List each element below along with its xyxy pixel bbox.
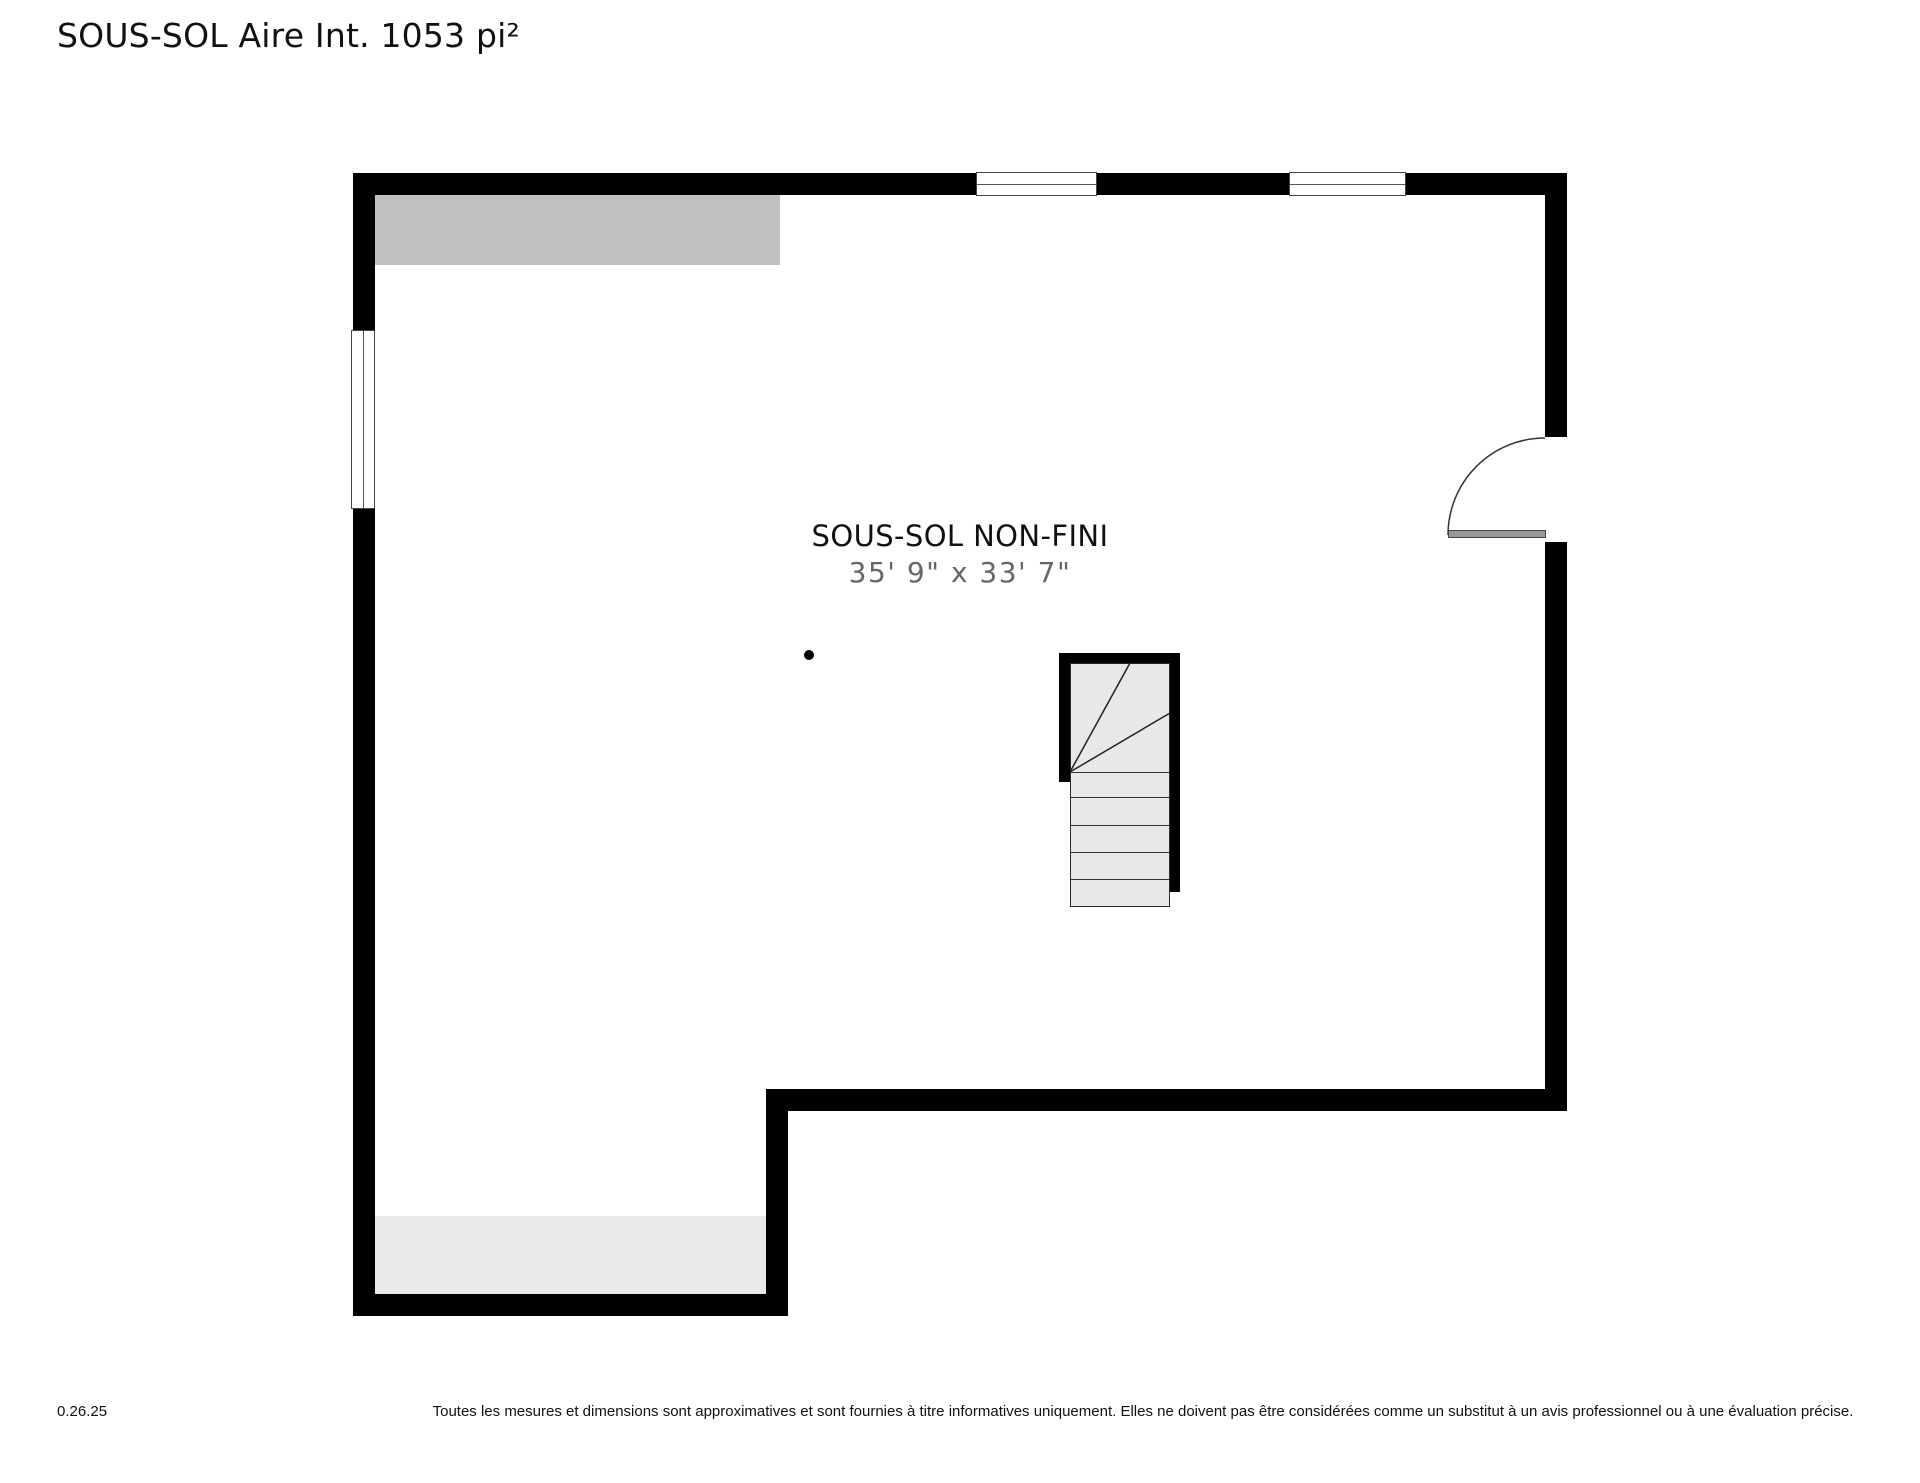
window-icon bbox=[1289, 172, 1406, 196]
wall-step-side bbox=[766, 1089, 788, 1316]
footer-disclaimer: Toutes les mesures et dimensions sont ap… bbox=[433, 1403, 1854, 1420]
unexcavated-area bbox=[375, 195, 780, 265]
window-pane-line bbox=[1290, 184, 1405, 185]
wall-right-upper bbox=[1545, 173, 1567, 437]
stair-wall-right bbox=[1170, 653, 1180, 892]
window-pane-line bbox=[977, 184, 1096, 185]
room-label: SOUS-SOL NON-FINI 35' 9" x 33' 7" bbox=[353, 519, 1567, 589]
page-title: SOUS-SOL Aire Int. 1053 pi² bbox=[57, 16, 520, 55]
stair-winder-lines bbox=[1059, 653, 1180, 907]
room-dimensions: 35' 9" x 33' 7" bbox=[353, 556, 1567, 589]
footer-version: 0.26.25 bbox=[57, 1403, 107, 1420]
wall-bottom-left bbox=[353, 1294, 788, 1316]
column-dot-icon bbox=[804, 650, 814, 660]
floorplan-page: SOUS-SOL Aire Int. 1053 pi² bbox=[0, 0, 1920, 1483]
window-pane-line bbox=[363, 331, 364, 508]
wall-step-bottom bbox=[766, 1089, 1567, 1111]
window-icon bbox=[351, 330, 375, 509]
room-name: SOUS-SOL NON-FINI bbox=[353, 519, 1567, 553]
stair-wall-top bbox=[1059, 653, 1180, 663]
lower-gray-area bbox=[375, 1216, 766, 1294]
staircase-icon bbox=[1059, 653, 1180, 907]
window-icon bbox=[976, 172, 1097, 196]
stair-wall-left bbox=[1059, 653, 1070, 782]
wall-right-lower bbox=[1545, 542, 1567, 1111]
